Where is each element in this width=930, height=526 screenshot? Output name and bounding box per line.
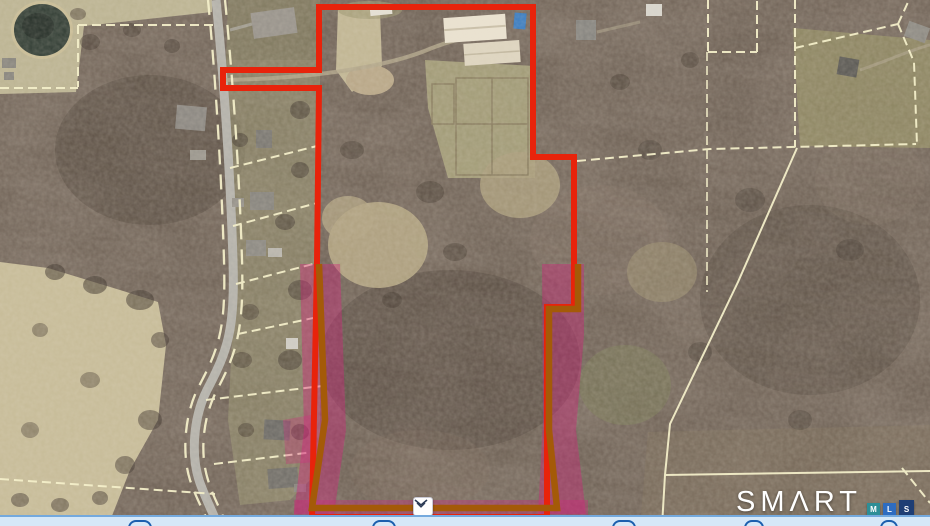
- cropped-glyph: [128, 520, 152, 526]
- cropped-glyph: [880, 520, 898, 526]
- aerial-map-viewport[interactable]: SMΛRT M L S: [0, 0, 930, 526]
- grain-overlay: [0, 0, 930, 526]
- cropped-glyph: [612, 520, 636, 526]
- aerial-map-canvas: [0, 0, 930, 526]
- cropped-glyph: [372, 520, 396, 526]
- cropped-glyph: [744, 520, 764, 526]
- bird-glyph: [414, 498, 428, 509]
- attribution-bar-cropped: [0, 515, 930, 526]
- mls-bird-marker-icon[interactable]: [413, 497, 433, 516]
